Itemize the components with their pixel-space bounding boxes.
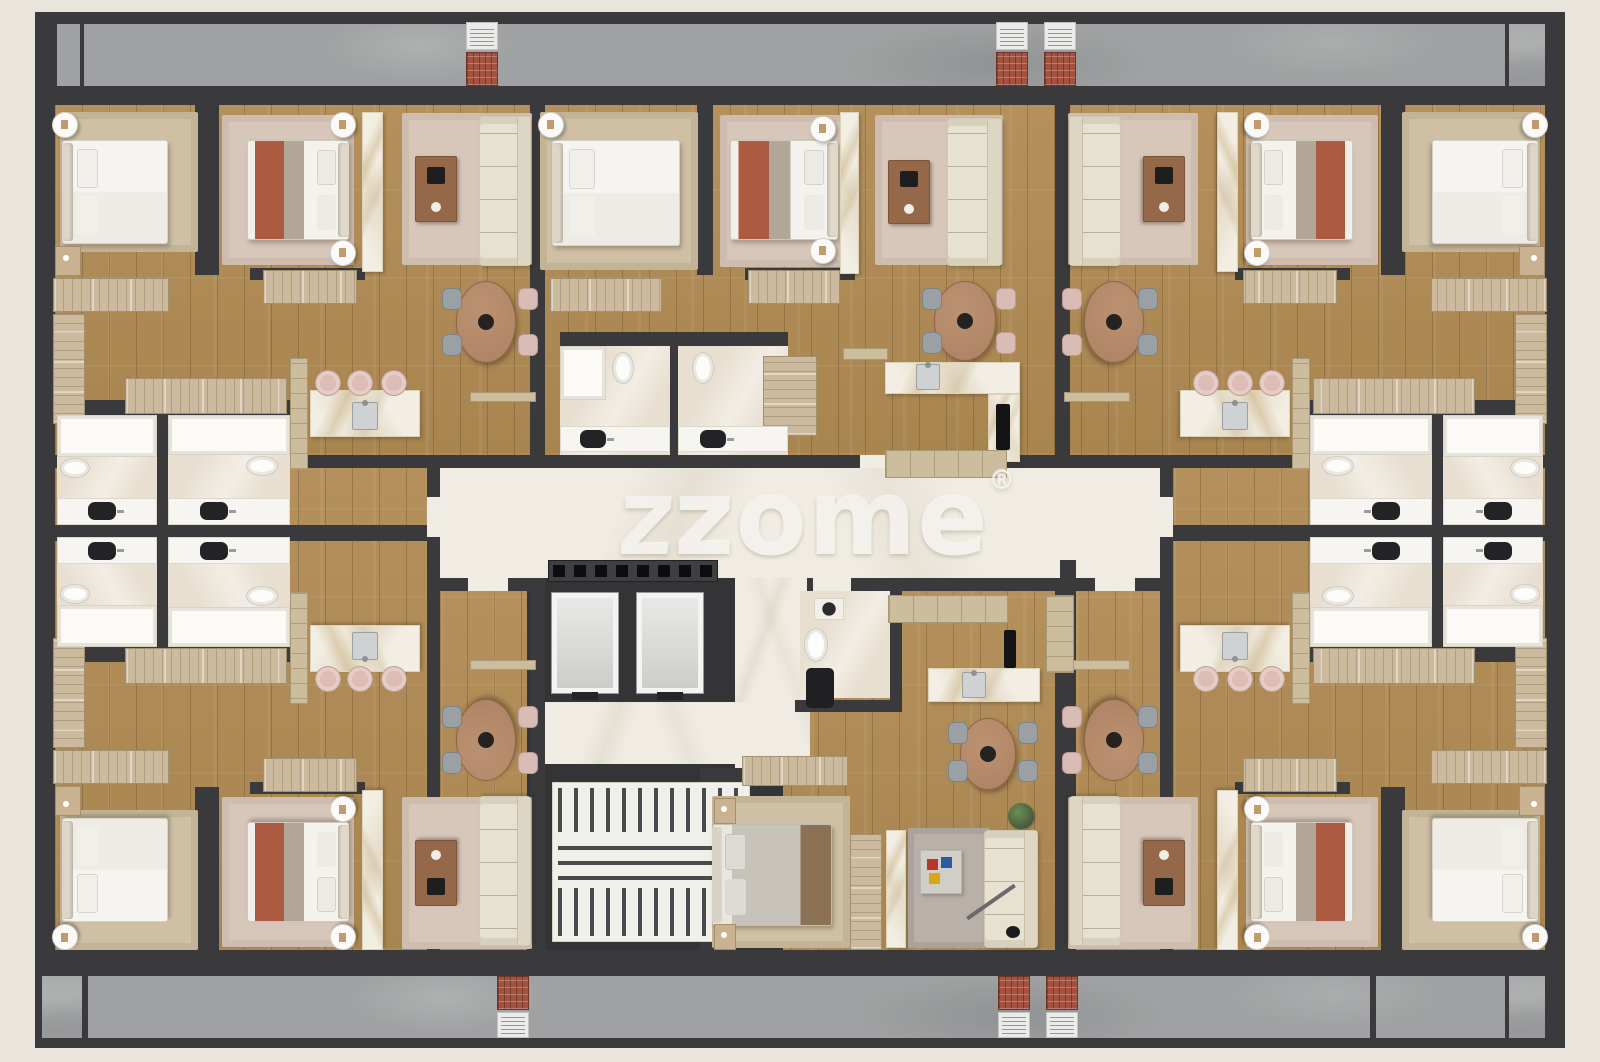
- coffee-table: [888, 160, 930, 224]
- door: [427, 497, 440, 537]
- side-table: [810, 238, 836, 264]
- bench: [806, 668, 834, 708]
- sofa: [1069, 796, 1121, 946]
- chair-pink: [518, 706, 538, 728]
- brick: [497, 976, 529, 1010]
- marble-strip: [1217, 112, 1238, 272]
- chair-gray: [442, 706, 462, 728]
- marble-strip: [362, 790, 383, 950]
- wardrobe: [125, 648, 287, 684]
- wardrobe: [742, 756, 848, 786]
- marble-strip: [1217, 790, 1238, 950]
- shower: [560, 346, 606, 400]
- bed-red: [1251, 140, 1353, 240]
- wardrobe: [263, 758, 357, 792]
- brick: [466, 52, 498, 86]
- side-table: [52, 924, 78, 950]
- shower: [1310, 415, 1432, 455]
- chair-pink: [996, 288, 1016, 310]
- shelf-tan: [470, 660, 536, 670]
- concrete: [88, 976, 1505, 1038]
- wardrobe: [550, 278, 662, 312]
- door: [468, 578, 508, 591]
- shower: [57, 415, 157, 457]
- shower: [57, 605, 157, 647]
- nightstand: [714, 798, 736, 824]
- brick: [1044, 52, 1076, 86]
- sink: [352, 402, 378, 430]
- wall: [80, 24, 84, 86]
- elevator: [637, 593, 703, 693]
- side-table: [1244, 924, 1270, 950]
- stool: [1227, 666, 1253, 692]
- stool: [315, 370, 341, 396]
- side-table: [330, 924, 356, 950]
- sofa: [479, 796, 531, 946]
- dining-table: [456, 281, 516, 363]
- shower: [168, 415, 290, 455]
- toilet: [1322, 586, 1354, 606]
- counter: [1310, 498, 1432, 525]
- stool: [1193, 666, 1219, 692]
- cooktop: [996, 404, 1010, 450]
- chair-gray: [442, 334, 462, 356]
- dining-table: [960, 718, 1016, 790]
- bed-white: [62, 818, 168, 922]
- side-table: [1244, 112, 1270, 138]
- nightstand: [55, 246, 81, 276]
- stool: [381, 370, 407, 396]
- washbasin: [814, 598, 844, 620]
- counter: [560, 426, 670, 452]
- side-table: [330, 240, 356, 266]
- side-table: [1522, 924, 1548, 950]
- bed-white: [62, 140, 168, 244]
- wardrobe: [1431, 278, 1547, 312]
- chair-gray: [1138, 706, 1158, 728]
- plant: [1008, 803, 1034, 829]
- grill: [497, 1012, 529, 1038]
- wall: [157, 537, 168, 647]
- shower: [1310, 607, 1432, 647]
- wall: [670, 346, 678, 455]
- chair-pink: [518, 334, 538, 356]
- nightstand: [1519, 786, 1545, 816]
- bed-red: [247, 140, 349, 240]
- toilet: [1510, 584, 1540, 604]
- brick: [998, 976, 1030, 1010]
- side-table: [538, 112, 564, 138]
- floor-plan: zzome®: [0, 0, 1600, 1062]
- sofa: [479, 116, 531, 266]
- basin: [88, 502, 116, 520]
- chair-gray: [1018, 722, 1038, 744]
- wardrobe-v: [1515, 314, 1547, 424]
- wardrobe: [748, 270, 840, 304]
- wardrobe: [1431, 750, 1547, 784]
- chair-pink: [518, 288, 538, 310]
- toilet: [1510, 458, 1540, 478]
- bed-red: [1251, 822, 1353, 922]
- side-table: [330, 112, 356, 138]
- wardrobe: [1313, 378, 1475, 414]
- grill: [1044, 22, 1076, 50]
- toilet-v: [692, 352, 714, 384]
- basin: [1484, 542, 1512, 560]
- shelf-tan: [843, 348, 888, 360]
- basin: [1484, 502, 1512, 520]
- toilet: [246, 586, 278, 606]
- wardrobe: [53, 278, 169, 312]
- sofa: [947, 118, 1002, 266]
- door: [813, 578, 851, 591]
- dining-table: [934, 281, 996, 361]
- marble: [540, 702, 758, 764]
- door: [1160, 497, 1173, 537]
- grill: [996, 22, 1028, 50]
- nightstand: [1519, 246, 1545, 276]
- counter: [1310, 537, 1432, 564]
- marble-strip: [840, 112, 859, 274]
- chair-pink: [518, 752, 538, 774]
- wardrobe-v: [850, 834, 882, 950]
- grill: [1046, 1012, 1078, 1038]
- toilet: [1322, 456, 1354, 476]
- shower: [168, 607, 290, 647]
- concrete: [1509, 24, 1545, 86]
- chair-gray: [1138, 288, 1158, 310]
- shelf-tan: [1064, 392, 1130, 402]
- sink: [1222, 632, 1248, 660]
- wardrobe: [125, 378, 287, 414]
- side-table: [330, 796, 356, 822]
- cab-tan-v: [290, 592, 308, 704]
- nightstand: [55, 786, 81, 816]
- coffee-table: [1143, 156, 1185, 222]
- toilet: [60, 458, 90, 478]
- chair-pink: [1062, 288, 1082, 310]
- coffee-table: [1143, 840, 1185, 906]
- chair-pink: [1062, 706, 1082, 728]
- wardrobe: [1243, 270, 1337, 304]
- chair-gray: [1018, 760, 1038, 782]
- toilet-v: [804, 628, 828, 662]
- chair-gray: [442, 288, 462, 310]
- stool: [1259, 666, 1285, 692]
- wardrobe: [263, 270, 357, 304]
- wardrobe: [1243, 758, 1337, 792]
- cab-tan-v: [1046, 595, 1074, 673]
- watermark-registered-icon: ®: [989, 466, 1015, 496]
- bed-red: [730, 140, 838, 240]
- basin: [88, 542, 116, 560]
- wardrobe-v: [53, 314, 85, 424]
- wardrobe-v: [1515, 638, 1547, 748]
- concrete: [1509, 976, 1545, 1038]
- chair-gray: [922, 332, 942, 354]
- side-table: [1244, 796, 1270, 822]
- bed-white: [552, 140, 680, 246]
- wardrobe: [53, 750, 169, 784]
- sink: [352, 632, 378, 660]
- wall: [157, 415, 168, 525]
- chair-gray: [1138, 752, 1158, 774]
- bed-white: [1432, 140, 1538, 244]
- cab-tan-v: [1292, 358, 1310, 470]
- chair-pink: [996, 332, 1016, 354]
- sink: [1222, 402, 1248, 430]
- bed-gray: [712, 824, 832, 926]
- concrete: [42, 976, 82, 1038]
- wall: [195, 787, 219, 957]
- basin: [1372, 502, 1400, 520]
- grill: [466, 22, 498, 50]
- basin: [200, 542, 228, 560]
- cab-tan-v: [290, 358, 308, 470]
- wardrobe: [1313, 648, 1475, 684]
- chair-gray: [442, 752, 462, 774]
- shower: [1443, 605, 1543, 647]
- chair-pink: [1062, 334, 1082, 356]
- dining-table: [456, 699, 516, 781]
- toilet: [246, 456, 278, 476]
- basin: [580, 430, 606, 448]
- dining-table: [1084, 699, 1144, 781]
- shelf-tan: [470, 392, 536, 402]
- chair-gray: [948, 760, 968, 782]
- wall: [1432, 415, 1443, 525]
- nightstand: [714, 924, 736, 950]
- door: [1095, 578, 1135, 591]
- island: [885, 362, 1020, 394]
- sink: [916, 364, 940, 390]
- coffee-table: [415, 840, 457, 906]
- wardrobe-v: [53, 638, 85, 748]
- sink: [962, 672, 986, 698]
- wall: [697, 105, 713, 275]
- stool: [315, 666, 341, 692]
- brick: [996, 52, 1028, 86]
- elevator: [552, 593, 618, 693]
- side-table: [52, 112, 78, 138]
- cab-tan-v: [1292, 592, 1310, 704]
- chair-gray: [922, 288, 942, 310]
- concrete: [57, 24, 1505, 86]
- stool: [347, 370, 373, 396]
- stool: [347, 666, 373, 692]
- watermark-logo-glyph: z: [611, 457, 682, 579]
- watermark-text: zome: [674, 457, 989, 579]
- shower: [1443, 415, 1543, 457]
- cooktop: [1004, 630, 1016, 668]
- stool: [381, 666, 407, 692]
- bed-white: [1432, 818, 1538, 922]
- wall: [560, 332, 788, 346]
- stool: [1227, 370, 1253, 396]
- wall: [1432, 537, 1443, 647]
- basin: [200, 502, 228, 520]
- lamp-head: [1006, 926, 1020, 938]
- basin: [1372, 542, 1400, 560]
- toilet: [60, 584, 90, 604]
- grill: [998, 1012, 1030, 1038]
- basin: [700, 430, 726, 448]
- brick: [1046, 976, 1078, 1010]
- cab-tan: [888, 595, 1008, 623]
- marble-strip: [886, 830, 906, 948]
- chair-gray: [1138, 334, 1158, 356]
- sofa: [1069, 116, 1121, 266]
- wall: [195, 105, 219, 275]
- wall: [1370, 976, 1376, 1038]
- bed-red: [247, 822, 349, 922]
- chair-gray: [948, 722, 968, 744]
- coffee-glass: [920, 850, 962, 894]
- marble-strip: [362, 112, 383, 272]
- side-table: [810, 116, 836, 142]
- stool: [1193, 370, 1219, 396]
- watermark: zzome®: [565, 458, 1065, 578]
- stool: [1259, 370, 1285, 396]
- chair-pink: [1062, 752, 1082, 774]
- coffee-table: [415, 156, 457, 222]
- wardrobe-v: [763, 356, 817, 436]
- side-table: [1244, 240, 1270, 266]
- toilet-v: [612, 352, 634, 384]
- dining-table: [1084, 281, 1144, 363]
- side-table: [1522, 112, 1548, 138]
